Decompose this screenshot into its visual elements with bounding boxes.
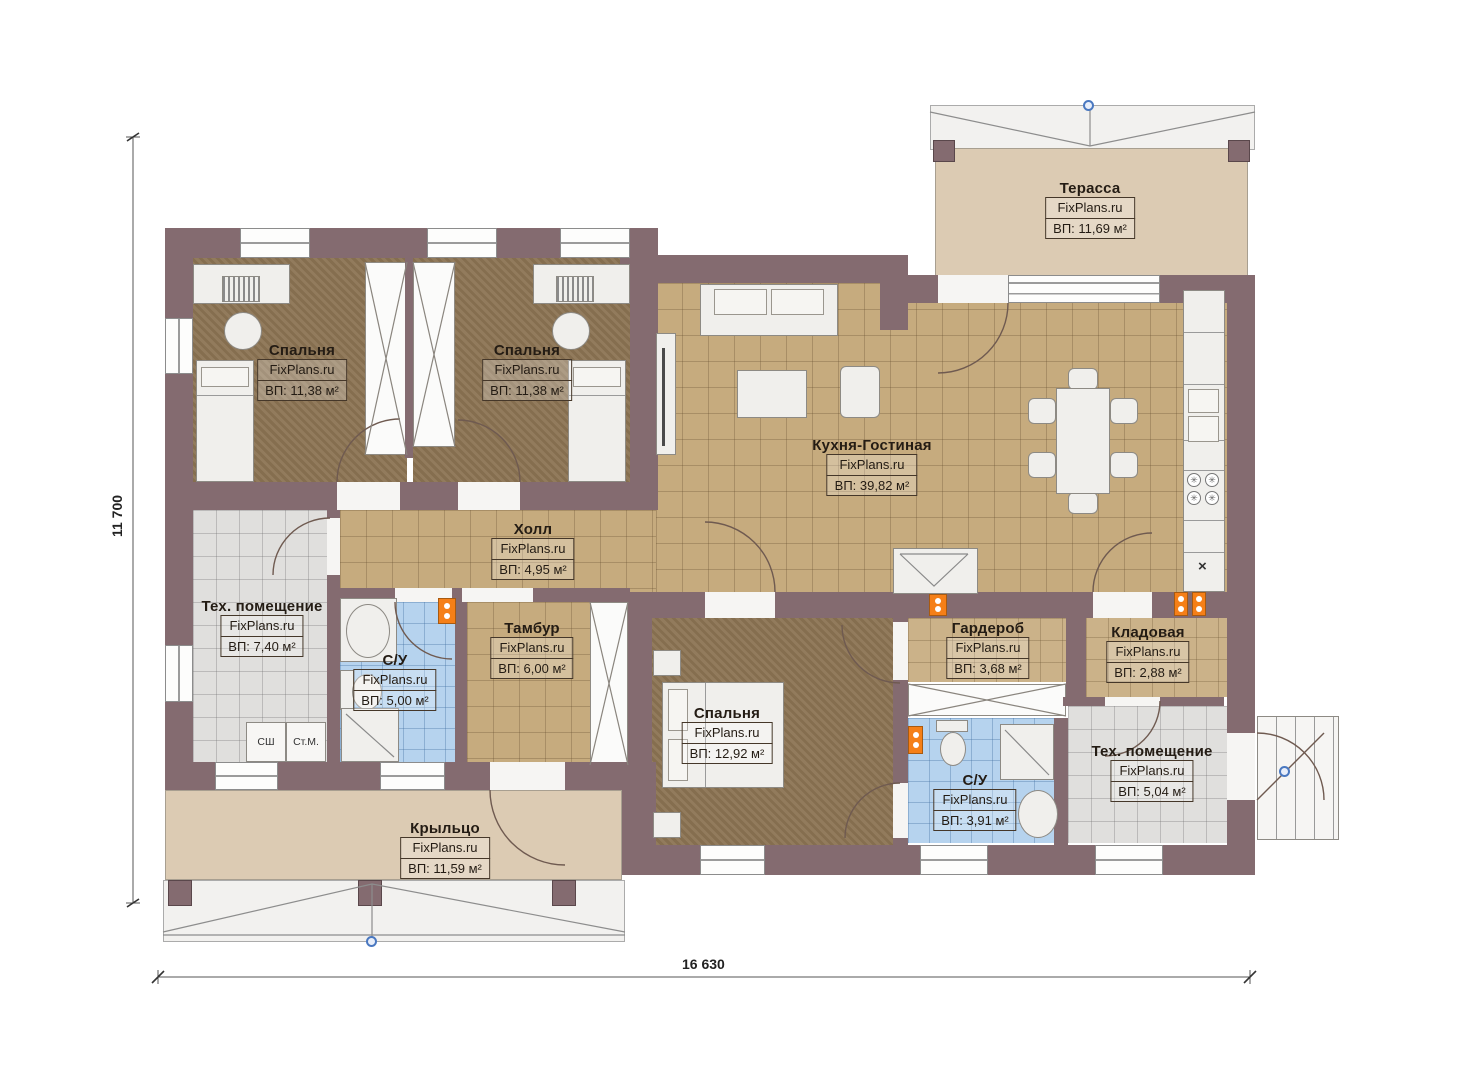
room-label-kitchen-living: Кухня-Гостиная FixPlans.ru ВП: 39,82 м² [812, 437, 931, 496]
brand-box: FixPlans.ru [400, 837, 490, 859]
bed [196, 360, 254, 482]
room-label-bath-2: С/У FixPlans.ru ВП: 3,91 м² [933, 772, 1016, 831]
roof-node-dot [366, 936, 377, 947]
desk-radiator [556, 276, 594, 302]
wall [1163, 845, 1227, 875]
room-name: Тех. помещение [201, 598, 322, 615]
room-info: FixPlans.ru ВП: 5,04 м² [1110, 761, 1193, 802]
door-opening [705, 592, 775, 618]
brand-box: FixPlans.ru [220, 615, 303, 637]
room-name: Холл [491, 521, 574, 538]
room-label-wardrobe: Гардероб FixPlans.ru ВП: 3,68 м² [946, 620, 1029, 679]
area-box: ВП: 7,40 м² [220, 636, 303, 658]
door-opening [938, 275, 1008, 303]
area-box: ВП: 3,68 м² [946, 658, 1029, 680]
window [380, 762, 445, 790]
desk-radiator [222, 276, 260, 302]
wall [1227, 800, 1255, 875]
room-info: FixPlans.ru ВП: 3,91 м² [933, 790, 1016, 831]
door-node-dot [1279, 766, 1290, 777]
area-box: ВП: 39,82 м² [827, 475, 918, 497]
stove-burner: ✳ [1205, 473, 1219, 487]
door-opening [893, 622, 908, 680]
pillow [201, 367, 249, 387]
dining-chair [1068, 492, 1098, 514]
wall [193, 482, 337, 510]
room-name: Спальня [257, 342, 347, 359]
window [215, 762, 278, 790]
room-label-tech-2: Тех. помещение FixPlans.ru ВП: 5,04 м² [1091, 743, 1212, 802]
brand-box: FixPlans.ru [827, 454, 918, 476]
brand-box: FixPlans.ru [682, 722, 773, 744]
room-info: FixPlans.ru ВП: 39,82 м² [827, 455, 918, 496]
dining-chair [1028, 452, 1056, 478]
door-opening [893, 783, 908, 838]
wall [893, 592, 908, 622]
dimension-height: 11 700 [109, 495, 125, 537]
wall [400, 482, 458, 510]
wall [775, 592, 905, 618]
entry-door-opening [490, 762, 565, 790]
wall [165, 228, 193, 790]
wall [1227, 275, 1255, 733]
counter-divider [1184, 520, 1224, 521]
area-box: ВП: 2,88 м² [1106, 662, 1189, 684]
room-info: FixPlans.ru ВП: 4,95 м² [491, 539, 574, 580]
window [920, 845, 988, 875]
dryer-label: СШ [257, 736, 274, 748]
window [560, 228, 630, 258]
area-box: ВП: 5,04 м² [1110, 781, 1193, 803]
room-info: FixPlans.ru ВП: 12,92 м² [682, 723, 773, 764]
wall [905, 275, 938, 303]
room-label-bedroom-2: Спальня FixPlans.ru ВП: 11,38 м² [482, 342, 572, 401]
wall [455, 602, 467, 765]
room-info: FixPlans.ru ВП: 7,40 м² [220, 616, 303, 657]
room-label-bath-1: С/У FixPlans.ru ВП: 5,00 м² [353, 652, 436, 711]
brand-box: FixPlans.ru [482, 359, 572, 381]
room-name: Кухня-Гостиная [812, 437, 931, 454]
wall [1054, 718, 1068, 845]
blanket-line [569, 395, 625, 396]
bathroom-sink [1018, 790, 1058, 838]
room-name: Тамбур [490, 620, 573, 637]
dining-chair [1110, 398, 1138, 424]
counter-divider [1184, 470, 1224, 471]
sliding-window [1008, 275, 1160, 303]
dining-table [1056, 388, 1110, 494]
tv [662, 348, 665, 446]
room-info: FixPlans.ru ВП: 11,38 м² [257, 360, 347, 401]
room-label-tambur: Тамбур FixPlans.ru ВП: 6,00 м² [490, 620, 573, 679]
dining-chair [1068, 368, 1098, 390]
wall [533, 588, 630, 602]
room-name: Гардероб [946, 620, 1029, 637]
area-box: ВП: 11,38 м² [482, 380, 572, 402]
room-name: Тех. помещение [1091, 743, 1212, 760]
wall [622, 762, 656, 875]
fireplace [893, 548, 978, 594]
wall [327, 575, 340, 765]
area-box: ВП: 3,91 м² [933, 810, 1016, 832]
porch-post [552, 880, 576, 906]
room-label-bedroom-1: Спальня FixPlans.ru ВП: 11,38 м² [257, 342, 347, 401]
counter-divider [1184, 332, 1224, 333]
window [240, 228, 310, 258]
wall [988, 845, 1095, 875]
wall [893, 680, 908, 783]
passage-opening [462, 588, 533, 602]
terrace-post [933, 140, 955, 162]
pillow [573, 367, 621, 387]
brand-box: FixPlans.ru [1045, 197, 1135, 219]
shower-tray [341, 708, 399, 762]
room-name: Терасса [1045, 180, 1135, 197]
wall [1160, 697, 1224, 706]
area-box: ВП: 11,69 м² [1045, 218, 1135, 240]
porch-floor [165, 790, 622, 880]
bed [568, 360, 626, 482]
tv-console [656, 333, 676, 455]
dryer-box: СШ [246, 722, 286, 762]
room-name: С/У [933, 772, 1016, 789]
room-name: Кладовая [1106, 624, 1189, 641]
floor-plan: ✳ ✳ ✳ ✳ × СШ Ст.М. [0, 0, 1474, 1080]
window [165, 645, 193, 702]
wall [893, 838, 908, 845]
door-opening [337, 482, 400, 510]
radiator [1192, 592, 1206, 616]
window [1095, 845, 1163, 875]
wall [765, 845, 920, 875]
brand-box: FixPlans.ru [353, 669, 436, 691]
wall [278, 762, 380, 790]
towel-radiator [438, 598, 456, 624]
wall [1066, 615, 1086, 703]
stove-burner: ✳ [1187, 473, 1201, 487]
area-box: ВП: 12,92 м² [682, 743, 773, 765]
brand-box: FixPlans.ru [491, 538, 574, 560]
brand-box: FixPlans.ru [933, 789, 1016, 811]
sofa [700, 284, 838, 336]
room-info: FixPlans.ru ВП: 5,00 м² [353, 670, 436, 711]
area-box: ВП: 5,00 м² [353, 690, 436, 712]
wardrobe-closet [908, 684, 1066, 716]
room-info: FixPlans.ru ВП: 11,38 м² [482, 360, 572, 401]
stove-burner: ✳ [1187, 491, 1201, 505]
room-label-pantry: Кладовая FixPlans.ru ВП: 2,88 м² [1106, 624, 1189, 683]
coffee-table [737, 370, 807, 418]
counter-divider [1184, 552, 1224, 553]
wall [405, 258, 413, 458]
wall [620, 255, 908, 283]
window [700, 845, 765, 875]
room-name: Спальня [682, 705, 773, 722]
door-opening [1105, 697, 1160, 706]
room-name: Крыльцо [400, 820, 490, 837]
room-info: FixPlans.ru ВП: 11,59 м² [400, 838, 490, 879]
room-info: FixPlans.ru ВП: 11,69 м² [1045, 198, 1135, 239]
door-opening [458, 482, 520, 510]
sink-drainer [1188, 416, 1219, 442]
terrace-roof-overhang [930, 105, 1255, 150]
room-label-bedroom-3: Спальня FixPlans.ru ВП: 12,92 м² [682, 705, 773, 764]
room-info: FixPlans.ru ВП: 6,00 м² [490, 638, 573, 679]
area-box: ВП: 6,00 м² [490, 658, 573, 680]
bedroom1-wardrobe [365, 262, 407, 455]
kitchen-sink [1188, 389, 1219, 413]
towel-radiator [908, 726, 923, 754]
toilet-bowl [940, 732, 966, 766]
room-info: FixPlans.ru ВП: 2,88 м² [1106, 642, 1189, 683]
door-opening [1093, 592, 1152, 618]
room-label-tech-1: Тех. помещение FixPlans.ru ВП: 7,40 м² [201, 598, 322, 657]
washer-box: Ст.М. [286, 722, 326, 762]
bedroom2-wardrobe [413, 262, 455, 447]
tambur-closet [590, 602, 628, 765]
washer-label: Ст.М. [293, 736, 319, 748]
room-name: С/У [353, 652, 436, 669]
stove-burner: ✳ [1205, 491, 1219, 505]
brand-box: FixPlans.ru [1106, 641, 1189, 663]
blanket-line [197, 395, 253, 396]
door-opening [327, 518, 340, 575]
dining-chair [1028, 398, 1056, 424]
armchair [840, 366, 880, 418]
window [427, 228, 497, 258]
radiator [1174, 592, 1188, 616]
wall [1063, 697, 1105, 706]
roof-node-dot [1083, 100, 1094, 111]
nightstand [653, 812, 681, 838]
room-info: FixPlans.ru ВП: 3,68 м² [946, 638, 1029, 679]
wall [628, 592, 705, 618]
window [165, 318, 193, 374]
terrace-post [1228, 140, 1250, 162]
wall [165, 762, 215, 790]
room-label-porch: Крыльцо FixPlans.ru ВП: 11,59 м² [400, 820, 490, 879]
area-box: ВП: 11,38 м² [257, 380, 347, 402]
wall [880, 283, 908, 330]
room-label-hall: Холл FixPlans.ru ВП: 4,95 м² [491, 521, 574, 580]
wall [445, 762, 490, 790]
area-box: ВП: 4,95 м² [491, 559, 574, 581]
brand-box: FixPlans.ru [1110, 760, 1193, 782]
brand-box: FixPlans.ru [490, 637, 573, 659]
cabinet-x-mark: × [1198, 558, 1207, 575]
door-opening [1227, 733, 1255, 800]
dimension-width: 16 630 [682, 956, 725, 972]
toilet-tank [936, 720, 968, 732]
porch-post [358, 880, 382, 906]
area-box: ВП: 11,59 м² [400, 858, 490, 880]
wall [1152, 592, 1227, 618]
sofa-cushion [771, 289, 824, 315]
room-name: Спальня [482, 342, 572, 359]
bathroom-sink [346, 604, 390, 658]
exterior-steps [1257, 716, 1339, 840]
room-label-terrace: Терасса FixPlans.ru ВП: 11,69 м² [1045, 180, 1135, 239]
dining-chair [1110, 452, 1138, 478]
brand-box: FixPlans.ru [946, 637, 1029, 659]
sofa-cushion [714, 289, 767, 315]
nightstand [653, 650, 681, 676]
radiator [929, 594, 947, 616]
porch-post [168, 880, 192, 906]
brand-box: FixPlans.ru [257, 359, 347, 381]
counter-divider [1184, 384, 1224, 385]
wall [630, 255, 658, 508]
